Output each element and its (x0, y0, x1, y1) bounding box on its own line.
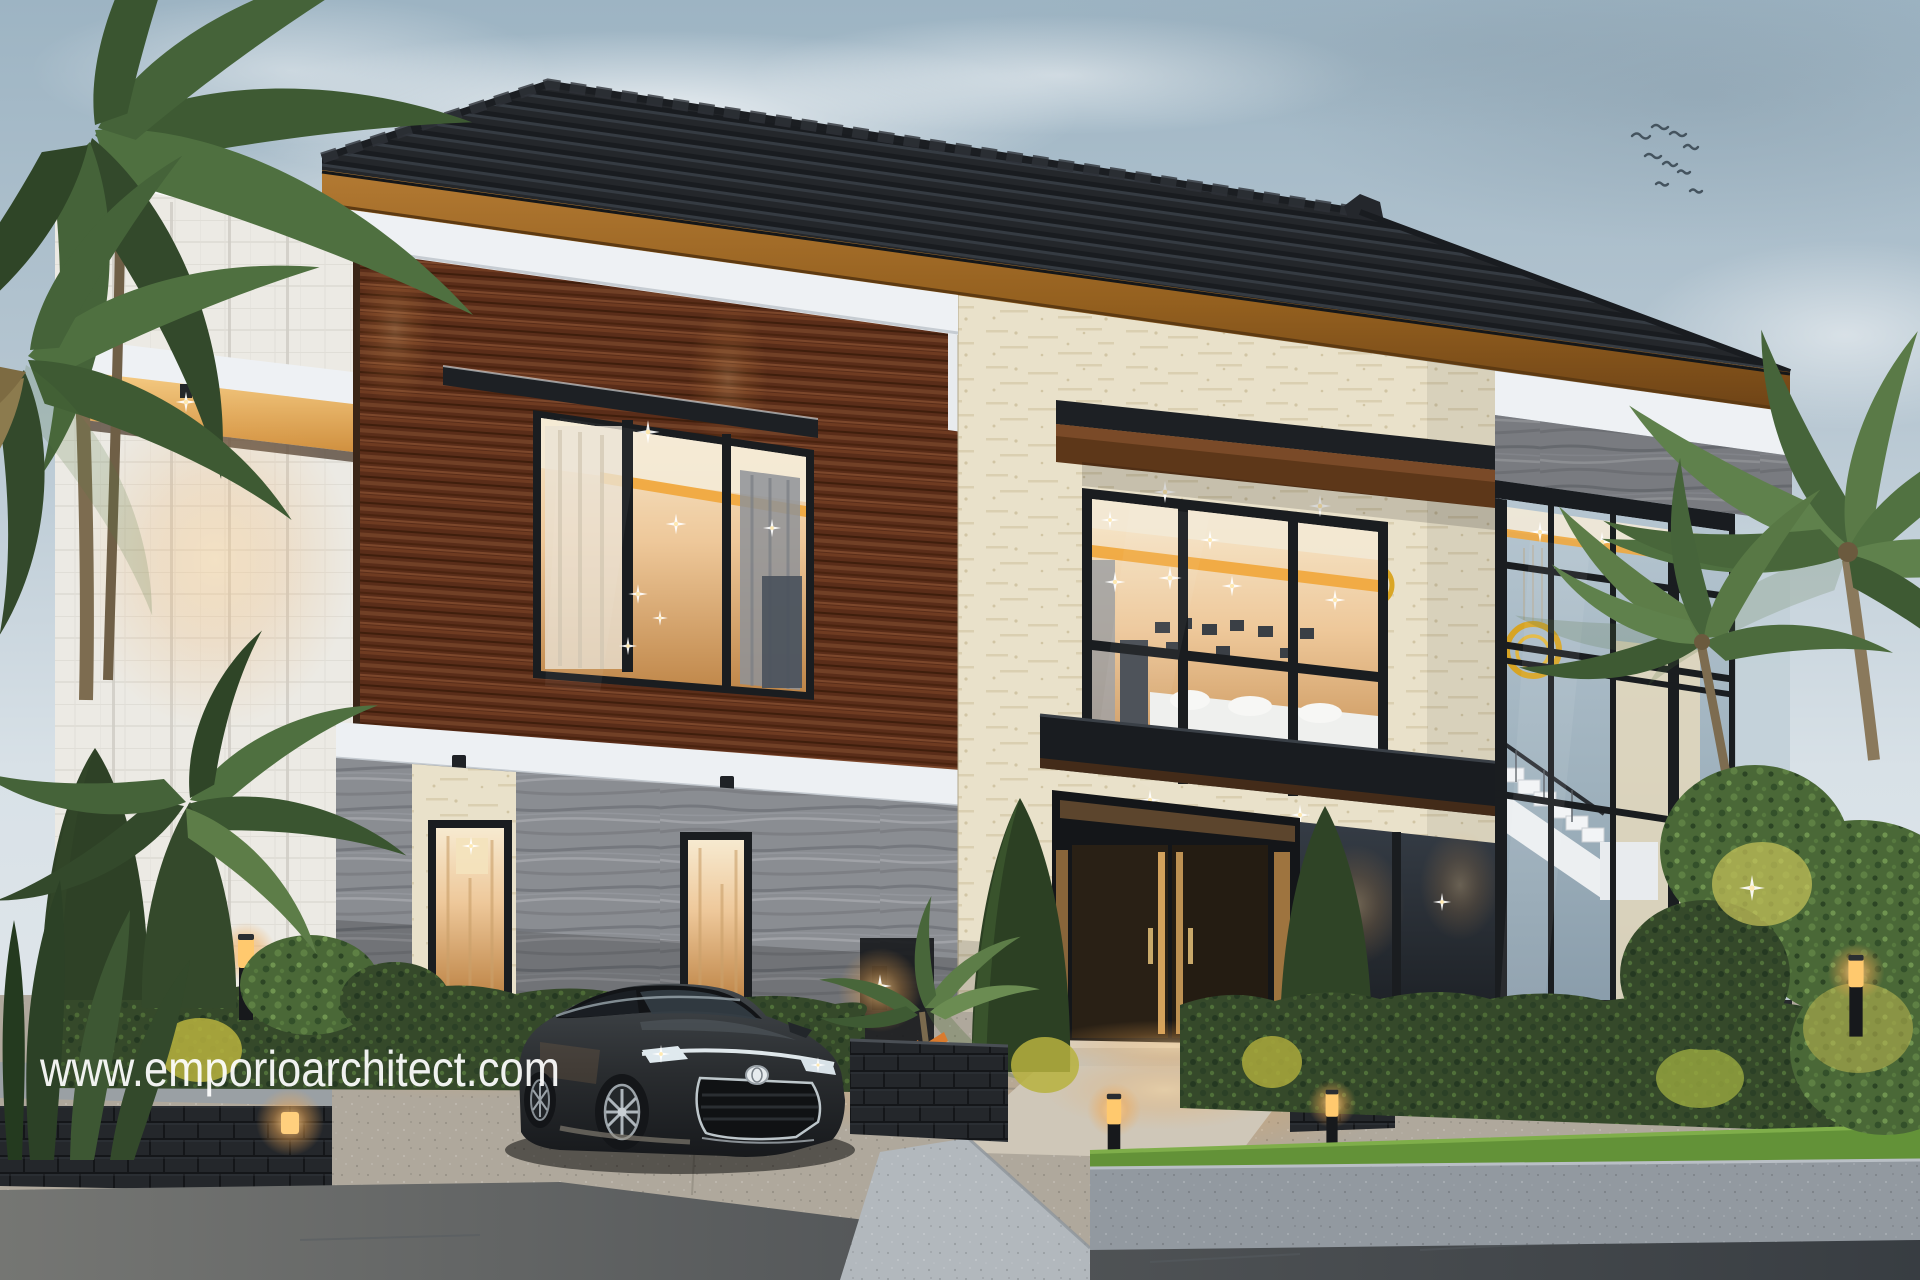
render-canvas: www.emporioarchitect.com (0, 0, 1920, 1280)
watermark-text: www.emporioarchitect.com (39, 1041, 560, 1097)
architectural-render: www.emporioarchitect.com (0, 0, 1920, 1280)
wardrobe (762, 576, 802, 688)
car-grille (697, 1078, 820, 1139)
tall-window-2 (680, 832, 752, 1006)
door-handle (1148, 928, 1153, 964)
door-handle (1188, 928, 1193, 964)
retaining-wall (1090, 1160, 1920, 1250)
ground-lamp (256, 1088, 324, 1156)
tall-window-1 (428, 820, 512, 1002)
lit-shrub (1242, 1036, 1302, 1088)
lit-shrub (1011, 1037, 1079, 1093)
lit-shrub (1656, 1048, 1744, 1108)
